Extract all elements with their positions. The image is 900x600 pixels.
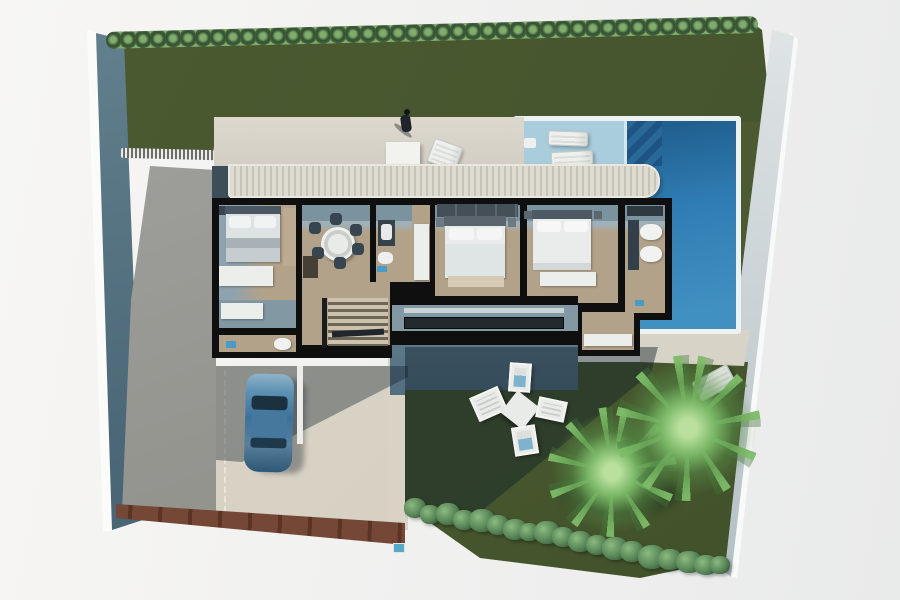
blue-mat bbox=[635, 300, 644, 306]
corridor-sill bbox=[404, 308, 564, 313]
staircase-treads bbox=[328, 298, 388, 346]
bed1-throw bbox=[226, 238, 280, 248]
blue-mat bbox=[377, 266, 387, 272]
nightstand bbox=[508, 218, 516, 227]
dining-chair bbox=[330, 213, 342, 225]
master-bench bbox=[448, 276, 504, 287]
bed2-footband bbox=[533, 263, 591, 270]
nightstand bbox=[436, 218, 444, 227]
blue-mat bbox=[226, 341, 236, 348]
stair-stringer bbox=[322, 298, 327, 348]
pool-lounger-1 bbox=[548, 130, 588, 146]
open-door-panel bbox=[414, 224, 429, 280]
interior-wall bbox=[520, 205, 527, 303]
nightstand bbox=[594, 211, 602, 219]
bed1-duvet bbox=[226, 248, 280, 262]
entrance-gate-strip bbox=[121, 148, 214, 160]
garden-chair bbox=[508, 362, 532, 392]
bed1-pillow bbox=[229, 216, 251, 228]
car-rear-glass bbox=[250, 437, 286, 448]
parked-car bbox=[244, 373, 297, 474]
bed1-pillow bbox=[254, 216, 276, 228]
bath2-sink bbox=[640, 246, 662, 262]
bush bbox=[710, 556, 730, 574]
bed1-dresser bbox=[219, 266, 273, 286]
nightstand bbox=[524, 211, 532, 219]
dining-chair bbox=[334, 257, 346, 269]
pool-side-table bbox=[524, 138, 536, 148]
car-windshield bbox=[251, 396, 287, 411]
person-head bbox=[404, 109, 410, 115]
bath2-shower bbox=[627, 206, 663, 216]
pergola-louvres bbox=[228, 164, 660, 198]
car-roof bbox=[251, 410, 288, 439]
dining-chair bbox=[352, 243, 364, 255]
bath2-sink bbox=[640, 224, 662, 240]
outdoor-shower-tray bbox=[393, 543, 405, 553]
corridor-window-band bbox=[404, 317, 564, 329]
bed2-pillow bbox=[564, 221, 588, 232]
garden-chair bbox=[511, 424, 539, 456]
bath2-counter bbox=[628, 220, 639, 270]
toilet bbox=[274, 338, 291, 350]
master-pillow bbox=[449, 228, 474, 240]
pool-corner-steps bbox=[627, 121, 662, 166]
terrace-table bbox=[386, 142, 420, 164]
wing-wall bbox=[275, 328, 296, 335]
bath1-sink bbox=[381, 224, 392, 240]
bath1-toilet bbox=[378, 252, 393, 264]
dining-chair bbox=[309, 222, 321, 234]
dining-cabinet bbox=[303, 256, 318, 278]
interior-wall bbox=[618, 205, 625, 260]
carport-column bbox=[297, 366, 303, 444]
person-figure bbox=[400, 114, 412, 132]
palm-tree bbox=[615, 355, 761, 501]
wardrobe-strip bbox=[283, 208, 296, 266]
bed2-bench bbox=[540, 272, 596, 286]
villa-plot-render bbox=[0, 0, 900, 600]
master-headboard bbox=[444, 216, 506, 226]
bed2-headboard bbox=[532, 210, 592, 219]
balcony-bench bbox=[584, 334, 632, 346]
hallway-bench bbox=[221, 303, 263, 319]
master-pillow bbox=[477, 228, 502, 240]
dining-chair bbox=[350, 224, 362, 236]
bed2-pillow bbox=[537, 221, 561, 232]
master-duvet bbox=[445, 244, 505, 278]
wing-wall bbox=[219, 328, 263, 335]
north-terrace bbox=[214, 117, 524, 169]
